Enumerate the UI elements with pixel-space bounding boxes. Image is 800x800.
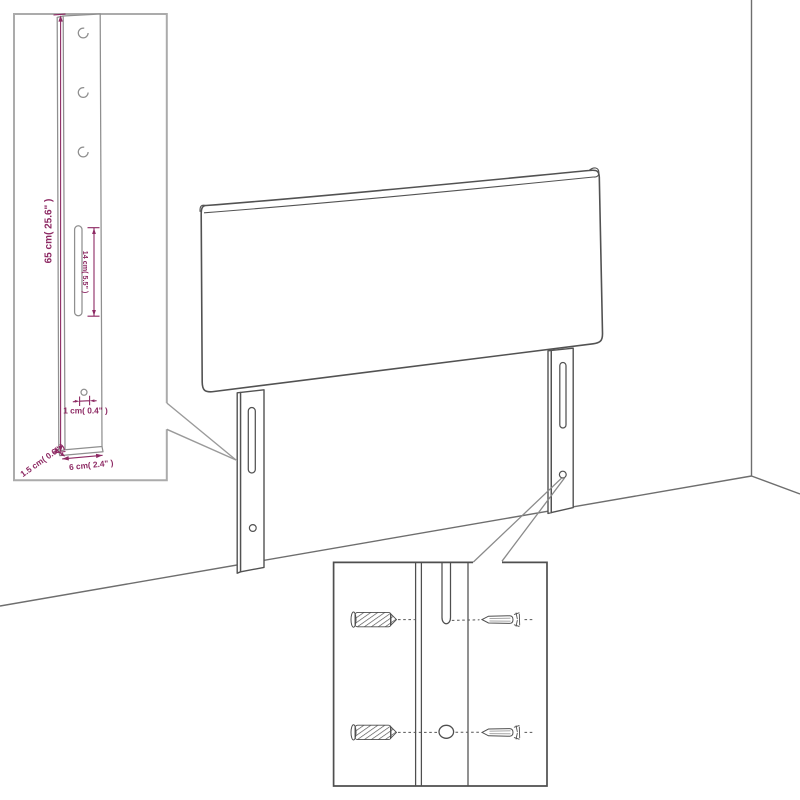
headboard-panel <box>200 168 603 392</box>
right-leg-hole <box>559 471 566 478</box>
left-leg-slot <box>248 408 255 474</box>
inset-leg-slot <box>75 226 82 316</box>
inset-leg-small-hole <box>81 389 87 395</box>
left-leg-hole <box>249 525 256 532</box>
floor-line-right <box>752 476 800 494</box>
headboard-front-face <box>201 170 602 392</box>
inset-leg-hole-1 <box>78 28 88 38</box>
screw-detail-inset <box>334 562 547 786</box>
inset-leg-hole-2 <box>78 88 88 98</box>
leg-detail-inset: 65 cm( 25.6" ) 14 cm( 5.5" ) 1 cm( 0.4" … <box>14 14 167 480</box>
wall-screw-top <box>351 612 397 627</box>
dimension-label-slot-length: 14 cm( 5.5" ) <box>81 251 90 294</box>
leg-hole-closeup <box>439 725 454 738</box>
callout-wedge-left <box>167 403 236 460</box>
right-leg-slot <box>560 363 566 429</box>
left-leg <box>237 390 264 573</box>
dimension-label-leg-height: 65 cm( 25.6" ) <box>44 199 55 264</box>
dimension-label-hole-diameter: 1 cm( 0.4" ) <box>63 406 108 416</box>
inset-leg-hole-3 <box>78 147 88 157</box>
wall-screw-bottom <box>351 725 397 740</box>
headboard-assembly-diagram: 65 cm( 25.6" ) 14 cm( 5.5" ) 1 cm( 0.4" … <box>0 0 800 800</box>
screw-inset-border <box>334 562 547 786</box>
right-leg <box>548 348 573 513</box>
diagram-page: 65 cm( 25.6" ) 14 cm( 5.5" ) 1 cm( 0.4" … <box>0 0 800 800</box>
